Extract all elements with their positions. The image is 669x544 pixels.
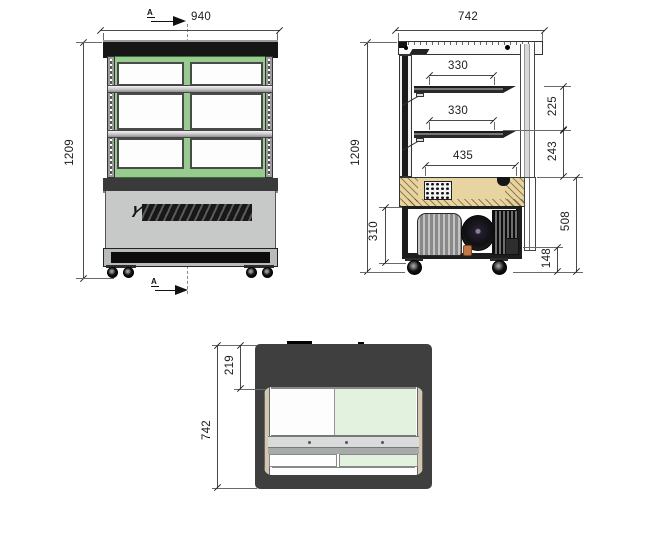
section-arrow-head [175,285,188,295]
ext-line [516,167,517,176]
caster-wheel [262,267,273,278]
ext-line [379,207,402,208]
ext-line [425,167,426,176]
side-shelf-lower-ticket-strip [503,131,516,138]
side-back-wall-core [402,56,408,176]
dim-caster-height-line [557,247,558,272]
front-vent-grille [111,252,270,263]
plan-lower-white-panel [269,454,337,467]
dim-base-shelf-line [425,165,516,166]
dim-front-height-line [83,42,84,279]
machine-frame-left [402,206,408,258]
section-arrow-tail [151,21,173,22]
dim-front-width-label: 940 [191,11,211,23]
caster-wheel [246,267,257,278]
dim-base-height-line [576,177,577,272]
dim-caster-height-label: 148 [541,248,553,268]
side-front-lower-panel [524,177,536,251]
plan-glass-green-half [334,389,416,435]
plan-shelf-dot [345,441,348,444]
ext-line [429,122,430,130]
side-top-vent-slots [402,42,539,45]
ext-line [76,278,114,279]
caster-wheel [492,260,507,275]
glass-pane [117,93,184,130]
dim-front-width-line [100,30,280,31]
dim-plan-depth-line [217,345,218,488]
panel-inner-line [529,178,530,250]
caster-wheel [123,267,134,278]
dim-shelf-mid-line [429,120,494,121]
ext-line [429,77,430,85]
front-shelf-upper [107,85,273,93]
dim-front-height-label: 1209 [64,139,76,166]
hinge-dot [505,45,510,50]
side-shelf-lower [414,131,503,138]
shelf-support [416,138,424,142]
front-brand-band: Y [130,204,252,221]
section-arrow-bottom: A [151,279,191,297]
light-fixture [410,49,430,54]
front-shelf-lower [107,130,273,138]
plan-lower-green-panel [339,454,418,467]
dim-plan-depth-label: 742 [201,420,213,440]
receiver-part [463,245,472,256]
side-shelf-upper [414,86,503,93]
section-arrow-head [173,16,186,26]
glass-pane [117,62,184,86]
glass-pane [190,93,263,130]
section-arrow-top: A [147,10,187,28]
ext-line [76,42,102,43]
ext-line [212,345,257,346]
caster-wheel [407,260,422,275]
glass-pane [190,138,263,169]
dim-base-height-label: 508 [560,211,572,231]
front-shelf-standard-left [107,56,115,178]
machine-frame-top [402,206,522,209]
dim-side-height-label: 1209 [350,139,362,166]
dim-side-width-label: 742 [458,11,478,23]
plan-opening [264,387,423,475]
hinge-dot [404,46,408,50]
section-letter-top: A [147,8,155,18]
shelf-support [416,93,424,97]
caster-wheel [107,267,118,278]
ext-line [398,33,399,41]
deck-hatch-bottom [400,199,530,206]
brand-stripes [142,204,252,221]
glass-pane [117,138,184,169]
plan-shelf-dot [381,441,384,444]
plan-bottom-strip [272,467,415,475]
front-shelf-standard-right [265,56,273,178]
side-front-glass [520,44,535,177]
section-arrow-tail [155,290,175,291]
dim-gap-upper-line [563,86,564,130]
section-letter-bottom: A [151,277,159,287]
technical-drawing-canvas: A 940 1209 Y [0,0,669,544]
glass-pane [190,62,263,86]
ext-line [360,42,397,43]
ext-line [544,86,571,87]
dim-machine-height-line [385,207,386,263]
dim-plan-inset-line [240,345,241,389]
evaporator-grille [424,181,452,200]
dim-side-width-line [395,30,545,31]
dim-machine-height-label: 310 [368,221,380,241]
dim-gap-lower-label: 243 [547,141,559,161]
plan-shelf-bar [268,436,419,448]
dim-shelf-top-line [429,75,494,76]
dim-gap-upper-label: 225 [547,96,559,116]
plan-shelf-dot [308,441,311,444]
dim-shelf-mid-label: 330 [448,105,468,117]
ext-line [212,488,257,489]
ext-line [360,272,405,273]
standard-holes [110,59,112,175]
dim-plan-inset-label: 219 [224,355,236,375]
electrical-box [505,238,519,255]
dim-gap-lower-line [563,130,564,177]
compressor [417,213,462,256]
dim-shelf-top-label: 330 [448,60,468,72]
dim-base-shelf-label: 435 [453,150,473,162]
ext-line [494,77,495,85]
ext-line [542,33,543,41]
standard-holes [268,59,270,175]
ext-line [494,122,495,130]
side-shelf-upper-ticket-strip [503,86,516,93]
